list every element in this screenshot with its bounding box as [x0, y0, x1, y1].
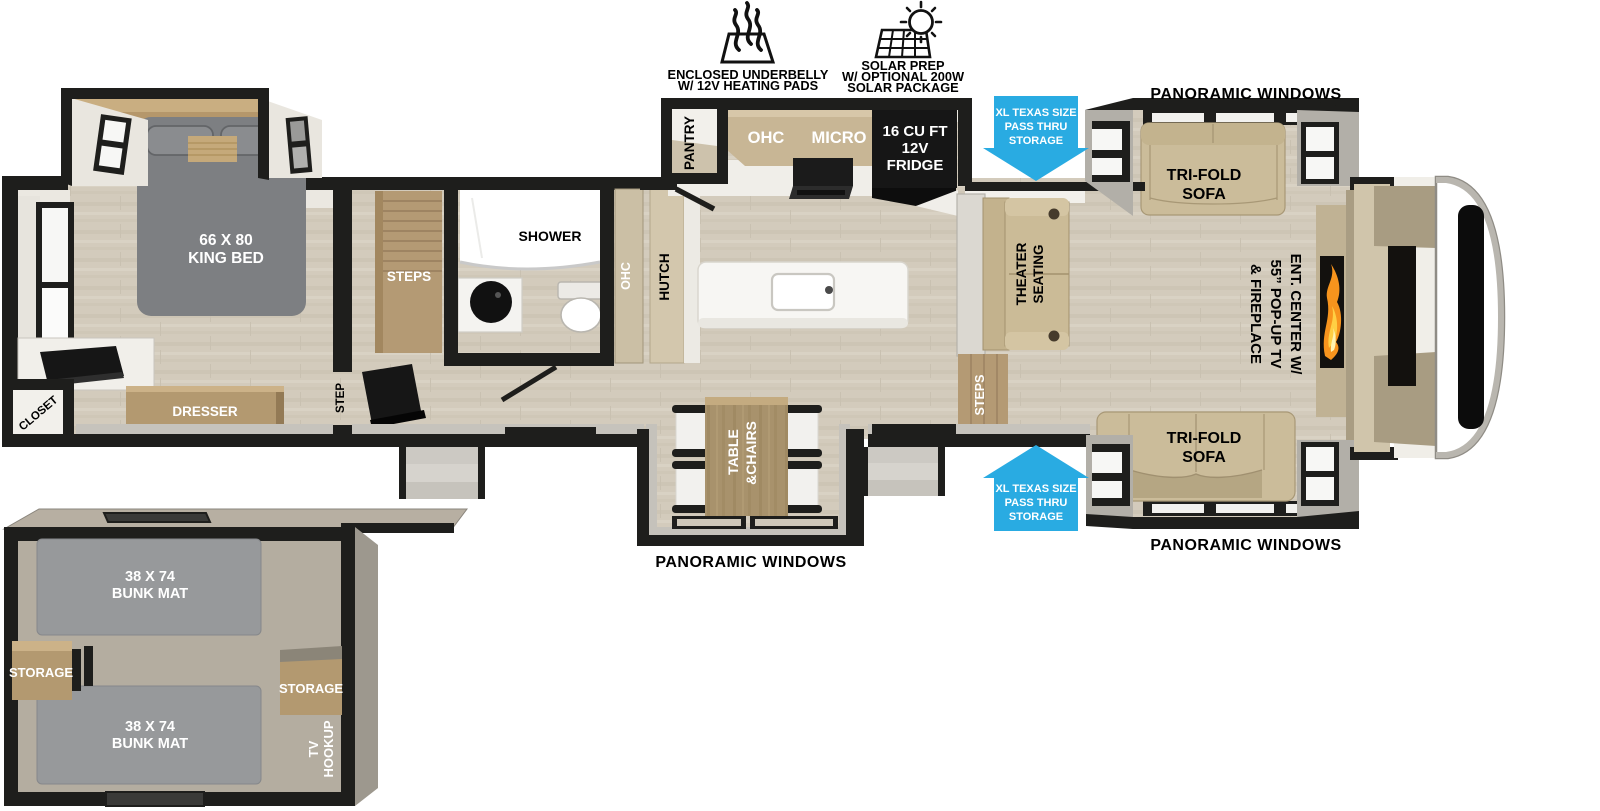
- svg-text:STEPS: STEPS: [387, 269, 431, 284]
- svg-text:SHOWER: SHOWER: [519, 228, 582, 244]
- svg-text:66 X 80: 66 X 80: [199, 232, 252, 249]
- svg-text:THEATER: THEATER: [1014, 242, 1029, 305]
- svg-text:STORAGE: STORAGE: [279, 681, 343, 696]
- svg-text:SOFA: SOFA: [1182, 186, 1226, 203]
- svg-text:OHC: OHC: [619, 262, 633, 290]
- svg-text:TRI-FOLD: TRI-FOLD: [1167, 167, 1242, 184]
- svg-text:38 X 74: 38 X 74: [125, 719, 175, 735]
- svg-text:& FIREPLACE: & FIREPLACE: [1247, 264, 1264, 364]
- svg-text:&CHAIRS: &CHAIRS: [743, 421, 759, 485]
- svg-text:PANORAMIC WINDOWS: PANORAMIC WINDOWS: [1150, 537, 1341, 554]
- svg-text:PASS THRU: PASS THRU: [1005, 121, 1068, 133]
- svg-text:STEP: STEP: [335, 383, 347, 413]
- svg-text:TRI-FOLD: TRI-FOLD: [1167, 430, 1242, 447]
- svg-text:PASS THRU: PASS THRU: [1005, 497, 1068, 509]
- svg-text:XL TEXAS SIZE: XL TEXAS SIZE: [995, 483, 1076, 495]
- svg-text:OHC: OHC: [748, 129, 785, 147]
- svg-text:16 CU FT: 16 CU FT: [882, 123, 947, 140]
- svg-text:TV: TV: [306, 740, 321, 757]
- svg-text:SOLAR PACKAGE: SOLAR PACKAGE: [847, 80, 959, 95]
- svg-text:PANORAMIC WINDOWS: PANORAMIC WINDOWS: [655, 554, 846, 571]
- svg-text:STORAGE: STORAGE: [1009, 511, 1063, 523]
- svg-text:SEATING: SEATING: [1031, 244, 1046, 303]
- svg-text:PANTRY: PANTRY: [682, 116, 697, 170]
- svg-text:SOFA: SOFA: [1182, 449, 1226, 466]
- svg-text:STORAGE: STORAGE: [1009, 135, 1063, 147]
- svg-text:HUTCH: HUTCH: [657, 253, 672, 300]
- svg-text:DRESSER: DRESSER: [172, 404, 238, 419]
- svg-text:W/ 12V HEATING PADS: W/ 12V HEATING PADS: [678, 78, 819, 93]
- svg-text:ENT. CENTER W/: ENT. CENTER W/: [1287, 254, 1304, 376]
- svg-text:KING BED: KING BED: [188, 250, 264, 267]
- svg-text:STEPS: STEPS: [973, 375, 987, 416]
- svg-text:MICRO: MICRO: [812, 129, 867, 147]
- svg-text:BUNK MAT: BUNK MAT: [112, 586, 188, 602]
- svg-text:STORAGE: STORAGE: [9, 665, 73, 680]
- svg-text:38 X 74: 38 X 74: [125, 569, 175, 585]
- svg-text:TABLE: TABLE: [725, 429, 741, 475]
- svg-text:PANORAMIC WINDOWS: PANORAMIC WINDOWS: [1150, 86, 1341, 103]
- svg-text:55” POP-UP TV: 55” POP-UP TV: [1267, 260, 1284, 369]
- svg-text:12V: 12V: [902, 140, 929, 157]
- svg-text:XL TEXAS SIZE: XL TEXAS SIZE: [995, 107, 1076, 119]
- svg-text:HOOKUP: HOOKUP: [321, 720, 336, 777]
- svg-text:BUNK MAT: BUNK MAT: [112, 736, 188, 752]
- svg-text:FRIDGE: FRIDGE: [887, 157, 944, 174]
